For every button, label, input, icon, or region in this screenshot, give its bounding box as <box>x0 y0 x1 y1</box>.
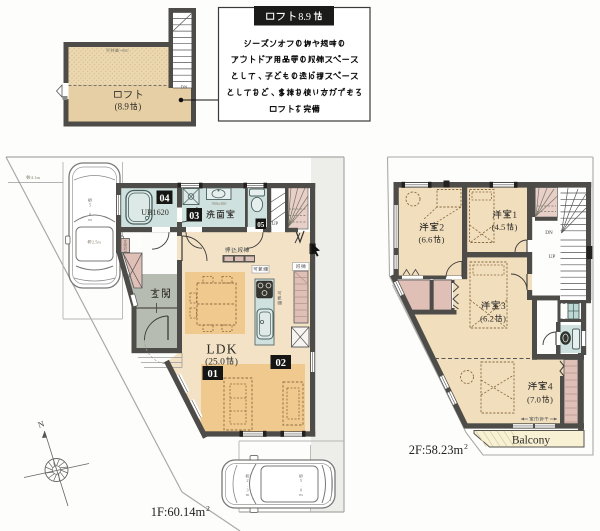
svg-text:2: 2 <box>439 223 444 234</box>
svg-text:2.5m: 2.5m <box>92 240 101 245</box>
svg-text:2F:58.23m: 2F:58.23m <box>409 443 464 457</box>
svg-text:4.1m: 4.1m <box>31 175 41 180</box>
svg-text:=900: =900 <box>119 48 129 53</box>
svg-text:(6.2: (6.2 <box>480 314 494 324</box>
svg-text:(8.9: (8.9 <box>115 102 130 112</box>
svg-text:02: 02 <box>275 358 286 369</box>
svg-text:2: 2 <box>464 442 468 451</box>
svg-text:LDK: LDK <box>206 342 237 357</box>
svg-text:8.9: 8.9 <box>298 12 311 23</box>
svg-text:): ) <box>442 235 445 245</box>
svg-text:DN: DN <box>181 85 188 90</box>
svg-text:4: 4 <box>548 382 553 393</box>
svg-text:1: 1 <box>512 210 517 221</box>
svg-text:Balcony: Balcony <box>512 435 551 447</box>
svg-text:01: 01 <box>207 369 218 380</box>
svg-text:(4.5: (4.5 <box>492 222 507 232</box>
svg-text:900x300: 900x300 <box>212 201 227 206</box>
svg-text:): ) <box>515 222 518 232</box>
svg-text:m: m <box>299 492 303 497</box>
svg-text:): ) <box>503 314 506 324</box>
svg-text:3: 3 <box>501 301 506 312</box>
svg-text:2: 2 <box>206 504 210 513</box>
svg-text:UP: UP <box>272 222 279 227</box>
svg-text:): ) <box>235 356 238 367</box>
svg-text:04: 04 <box>160 194 170 205</box>
svg-text:03: 03 <box>189 211 199 222</box>
svg-text:UP: UP <box>549 254 556 260</box>
svg-text:05: 05 <box>257 221 265 229</box>
svg-text:1F:60.14m: 1F:60.14m <box>151 505 206 519</box>
svg-text:m: m <box>88 217 92 222</box>
svg-text:m: m <box>246 492 250 497</box>
svg-text:(25.0: (25.0 <box>205 356 225 367</box>
svg-text:DN: DN <box>545 230 553 236</box>
svg-text:): ) <box>550 395 553 405</box>
svg-text:(6.6: (6.6 <box>419 235 434 245</box>
svg-text:(7.0: (7.0 <box>527 395 542 405</box>
svg-text:): ) <box>138 102 141 112</box>
svg-text:UB1620: UB1620 <box>141 208 169 217</box>
